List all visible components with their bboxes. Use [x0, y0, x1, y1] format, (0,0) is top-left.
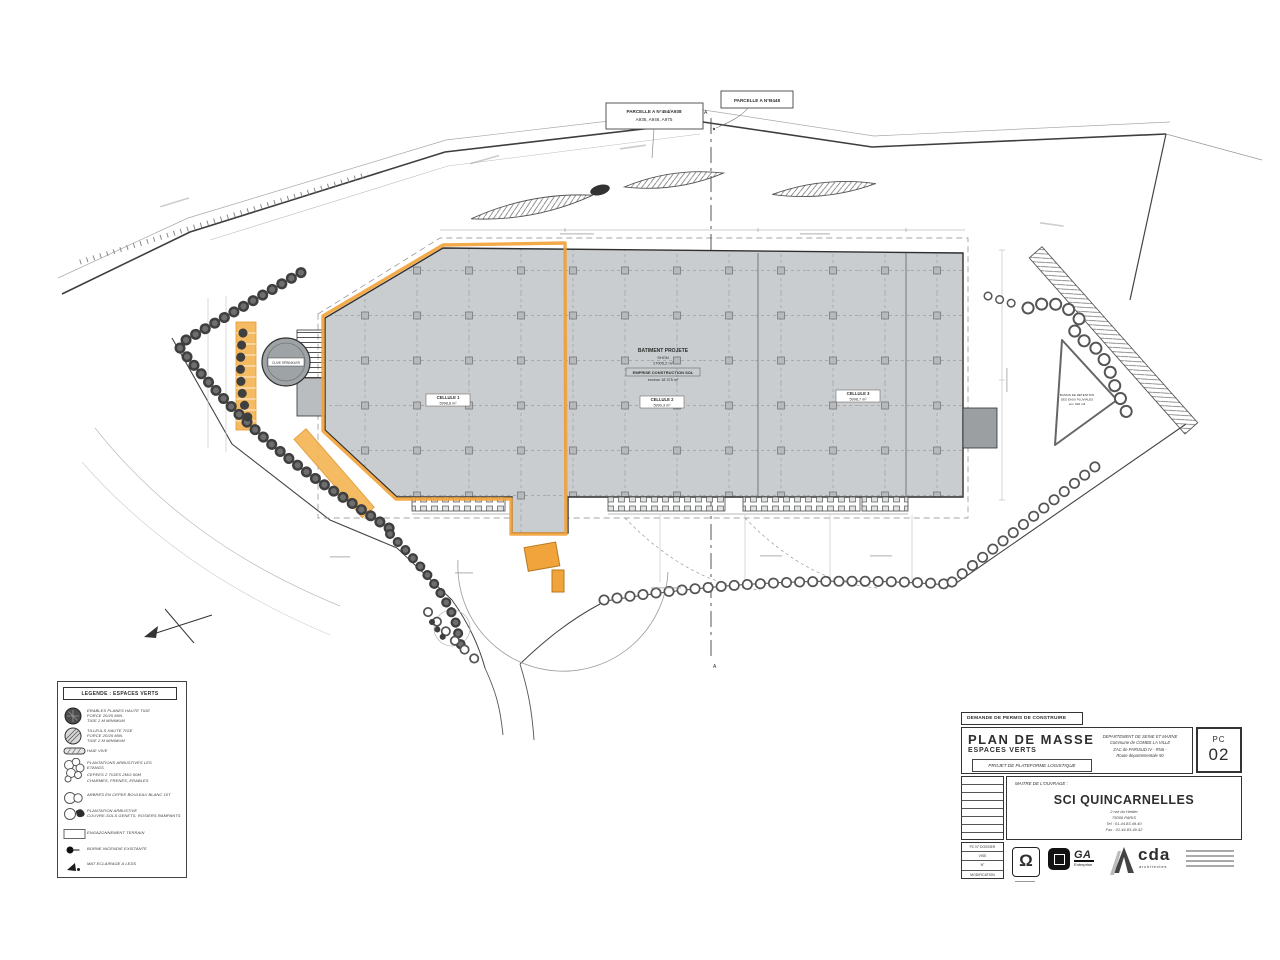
legend-item: HAIE VIVE: [63, 746, 181, 753]
cell-area: 5998,8 m²: [439, 401, 457, 405]
legend-item: PLANTATION ARBUSTIVECOUVRE-SOLS GENETS, …: [63, 806, 181, 818]
building-label-line: EMPRISE CONSTRUCTION SOL: [633, 370, 694, 375]
owner-box: MAITRE DE L'OUVRAGE : SCI QUINCARNELLES …: [1006, 776, 1242, 840]
legend-item: ERABLES PLANES HAUTE TIGEFORCE 20/25 MIN…: [63, 706, 181, 724]
axis-marker-bottom: A: [713, 664, 717, 670]
parcel-label-1: PARCELLE A N°454/A938 A935, A946, A975: [606, 103, 703, 158]
revision-mini-table: PC N° DOSSIER VISE N° MODIFICATION: [961, 842, 1004, 879]
building-label-line: BATIMENT PROJETE: [638, 348, 689, 354]
permit-banner: DEMANDE DE PERMIS DE CONSTRUIRE: [961, 712, 1083, 725]
owner-label: MAITRE DE L'OUVRAGE :: [1015, 781, 1068, 786]
gatehouse: [524, 542, 560, 571]
tank-label: CUVE SPRINKLER: [272, 361, 301, 365]
parcel-label-line: A935, A946, A975: [636, 117, 673, 122]
legend-item: MAT ECLAIRAGE A LEDS: [63, 859, 181, 866]
parcel-label-line: PARCELLE A N°B448: [734, 98, 781, 103]
parcel-label-line: PARCELLE A N°454/A938: [626, 109, 681, 114]
sheet-title-box: PLAN DE MASSE ESPACES VERTS PROJET DE PL…: [961, 727, 1193, 774]
project-label: PROJET DE PLATEFORME LOGISTIQUE: [972, 759, 1092, 772]
building-label-line: 17005,2 m²: [653, 361, 674, 366]
legend-espaces-verts: LEGENDE : ESPACES VERTS ERABLES PLANES H…: [57, 681, 187, 878]
ga-logo-sub: Entreprise: [1074, 862, 1092, 867]
sheet-number: 02: [1198, 745, 1240, 765]
legend-item: ARBRES EN CEPEE BOULEAU BLANC 10T: [63, 790, 181, 797]
cell-name: CELLULE 2: [651, 397, 674, 402]
basin-line: env. 920 m3: [1069, 402, 1086, 406]
legend-title: LEGENDE : ESPACES VERTS: [63, 687, 177, 700]
left-annex: [297, 378, 325, 416]
sheet-subtitle: ESPACES VERTS: [968, 747, 1037, 754]
parcel-label-2: PARCELLE A N°B448: [713, 91, 793, 130]
axis-marker-top: A: [704, 110, 708, 116]
sprinkler-tank: CUVE SPRINKLER: [262, 338, 310, 386]
ga-logo-icon: [1048, 848, 1070, 870]
omega-logo: Ω: [1012, 847, 1040, 877]
cell-name: CELLULE 3: [847, 391, 870, 396]
north-arrow: [144, 609, 212, 643]
right-annex: [963, 408, 997, 448]
location-lines: DEPARTEMENT DE SEINE ET MARNE Commune de…: [1094, 734, 1186, 759]
scanned-plan-sheet: A A: [0, 0, 1280, 960]
projected-building: [297, 248, 997, 533]
architect-address-line: [1186, 850, 1234, 852]
basin-line: DES EAUX PLUVIALES: [1061, 398, 1093, 402]
legend-item: BORNE INCENDIE EXISTANTE: [63, 844, 181, 851]
legend-item: PLANTATIONS ARBUSTIVES LESETANGSCEPEES 2…: [63, 758, 181, 783]
sheet-number-box: PC 02: [1196, 727, 1242, 773]
legend-item: ENGAZONNEMENT TERRAIN: [63, 828, 181, 835]
building-label-line: SHON: [657, 355, 669, 360]
cell-area: 5990,3 m²: [653, 403, 671, 407]
sheet-code: PC: [1198, 735, 1240, 744]
title-block: DEMANDE DE PERMIS DE CONSTRUIRE PLAN DE …: [958, 707, 1242, 880]
cda-logo-text: cda: [1138, 845, 1170, 865]
sheet-title: PLAN DE MASSE: [968, 732, 1094, 747]
basin-line: BASSIN DE RETENTION: [1060, 393, 1094, 397]
cell-area: 5998,7 m²: [849, 397, 867, 401]
cell-name: CELLULE 1: [437, 395, 460, 400]
embankment-road-hatched: [1029, 247, 1197, 434]
building-label-line: environ 18 375 m²: [648, 378, 679, 382]
legend-item: TILLEULS HAUTE TIGEFORCE 20/25 MIN.TIGE …: [63, 726, 181, 744]
landscape-berms: [470, 167, 877, 227]
owner-address: 2 rue du Helder 75009 PARIS Tel : 01.44.…: [1007, 809, 1241, 833]
owner-name: SCI QUINCARNELLES: [1007, 793, 1241, 807]
cda-logo-sub: architectes: [1139, 864, 1167, 869]
revision-column: [961, 776, 1004, 840]
